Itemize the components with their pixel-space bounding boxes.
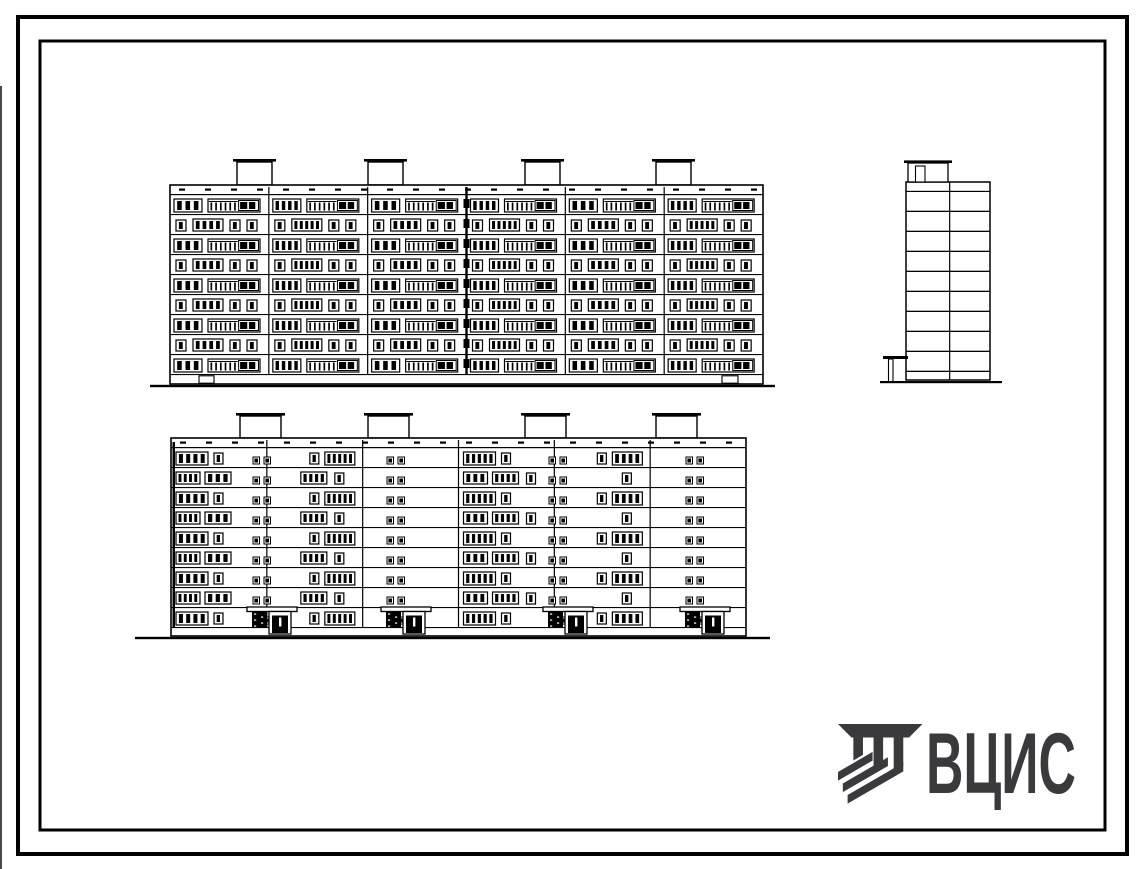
scan-artifact-line <box>0 86 2 869</box>
front-elevation <box>150 159 775 387</box>
rear-elevation <box>135 413 770 639</box>
elevations-drawing: ВЦИС <box>0 0 1139 869</box>
drawing-sheet: ВЦИС <box>0 0 1139 869</box>
vcis-logo-text: ВЦИС <box>926 716 1076 812</box>
